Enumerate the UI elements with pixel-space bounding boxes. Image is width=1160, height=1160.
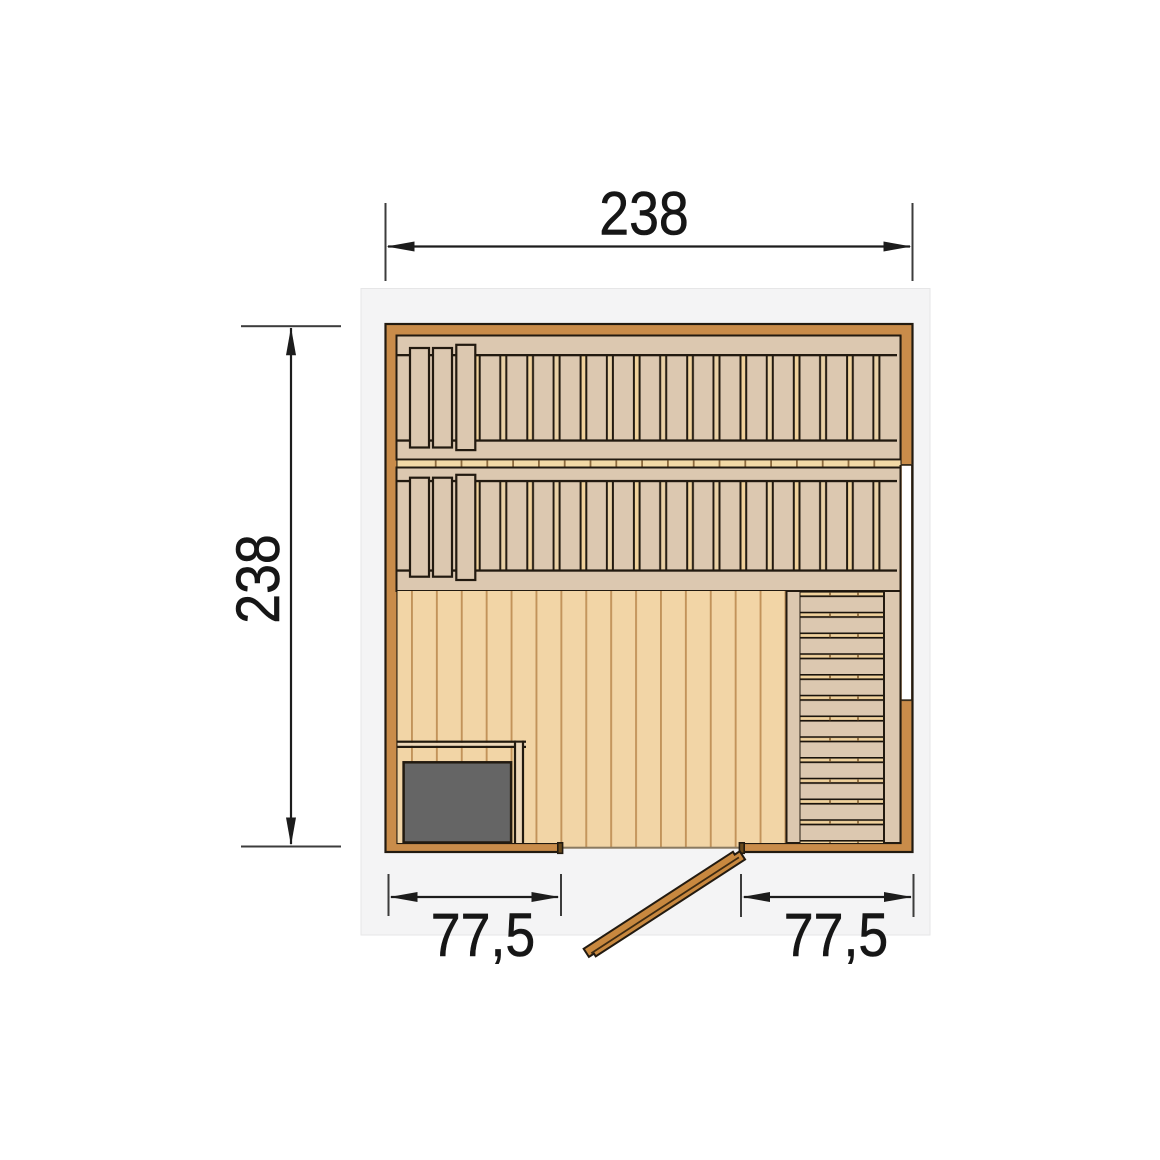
svg-text:238: 238	[225, 534, 293, 624]
svg-text:238: 238	[599, 180, 689, 248]
svg-text:77,5: 77,5	[784, 902, 888, 970]
svg-text:77,5: 77,5	[431, 902, 535, 970]
